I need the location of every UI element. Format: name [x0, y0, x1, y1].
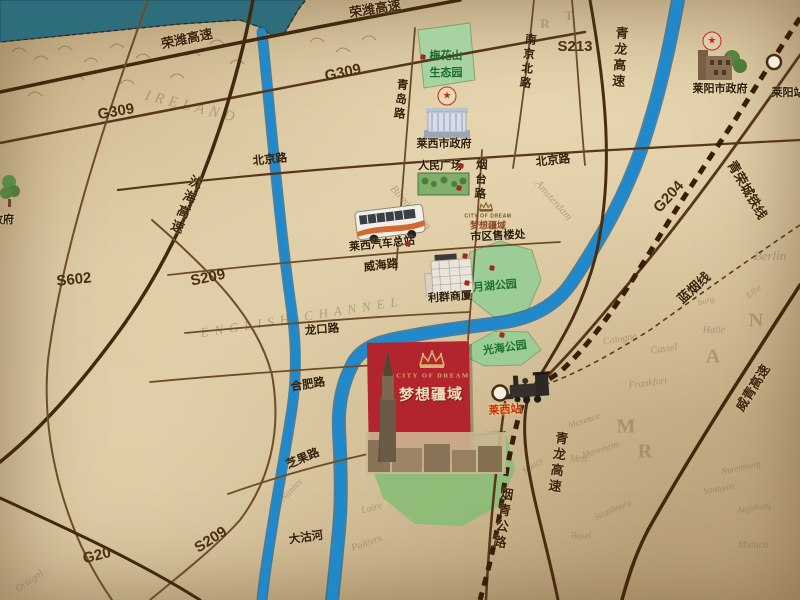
- poi-dot-8: [499, 332, 505, 338]
- poi-dot-7: [489, 265, 495, 271]
- poi-dot-1: [420, 54, 426, 60]
- laixi-government-star-icon: ★: [438, 87, 457, 106]
- laiyang-government-star-icon: ★: [703, 32, 722, 51]
- poi-dot-4: [405, 241, 411, 247]
- poi-dot-2: [458, 163, 464, 169]
- laixi-location-map: IRELANDBirminghamAmsterdamENGLISH CHANNE…: [0, 0, 800, 600]
- poi-dot-6: [462, 253, 468, 259]
- map-marks-layer: ★★: [0, 0, 800, 600]
- poi-dot-5: [464, 280, 470, 286]
- poi-dot-3: [456, 185, 462, 191]
